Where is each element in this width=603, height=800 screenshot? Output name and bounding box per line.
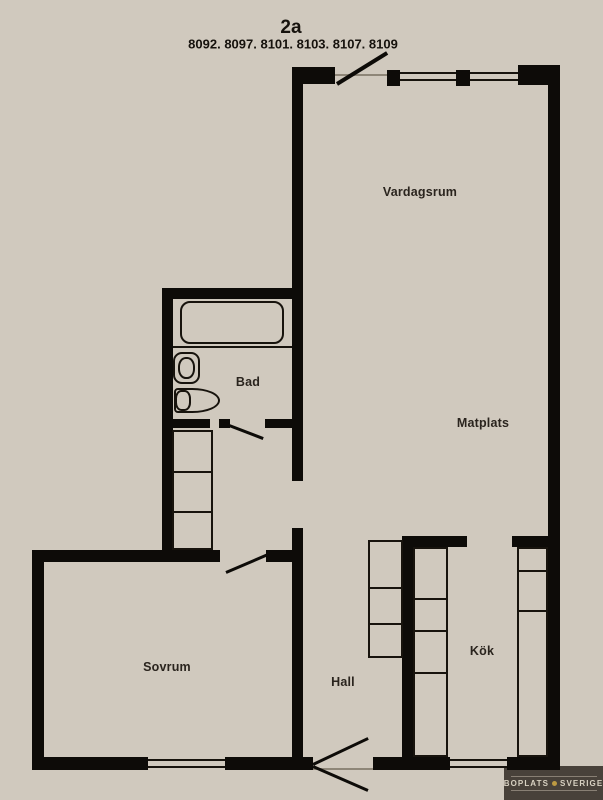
wall-segment xyxy=(373,757,450,770)
counter-divider xyxy=(415,630,446,632)
wall-segment xyxy=(266,550,303,562)
wall-segment xyxy=(512,536,548,547)
wall-segment xyxy=(32,550,220,562)
unit-numbers: 8092. 8097. 8101. 8103. 8107. 8109 xyxy=(188,37,398,52)
watermark-text-left: BOPLATS xyxy=(504,779,549,788)
sink-basin xyxy=(175,390,191,411)
closet-divider xyxy=(370,587,401,589)
wall-segment xyxy=(162,288,303,299)
room-label-hall: Hall xyxy=(331,675,355,689)
window-mullion xyxy=(456,70,470,86)
hall-wardrobe xyxy=(172,430,213,550)
room-label-sovrum: Sovrum xyxy=(143,660,191,674)
watermark-rule-top xyxy=(511,776,597,777)
wall-segment xyxy=(225,757,313,770)
window xyxy=(387,72,520,81)
room-label-bad: Bad xyxy=(236,375,260,389)
wall-segment xyxy=(32,757,148,770)
window xyxy=(450,759,507,768)
door-swing xyxy=(225,553,268,574)
wall-segment xyxy=(402,536,413,757)
wardrobe-divider xyxy=(174,511,211,513)
entrance-door-swing xyxy=(312,737,368,766)
watermark-badge: BOPLATS SVERIGE xyxy=(504,766,603,800)
door-threshold xyxy=(335,74,388,76)
watermark-text: BOPLATS SVERIGE xyxy=(504,779,603,788)
floorplan: 2a 8092. 8097. 8101. 8103. 8107. 8109 BO… xyxy=(0,0,603,800)
kitchen-counter-right xyxy=(517,547,548,757)
room-label-kok: Kök xyxy=(470,644,494,658)
room-label-matplats: Matplats xyxy=(457,416,509,430)
door-swing xyxy=(336,51,388,85)
bathtub xyxy=(180,301,284,344)
wall-segment xyxy=(292,528,303,757)
wardrobe-divider xyxy=(174,471,211,473)
wall-segment xyxy=(265,419,303,428)
toilet-seat xyxy=(178,357,195,379)
room-label-vardagsrum: Vardagsrum xyxy=(383,185,457,199)
bathtub-platform-edge xyxy=(173,346,292,348)
wall-segment xyxy=(548,65,560,770)
wall-segment xyxy=(507,757,560,770)
counter-divider xyxy=(519,570,546,572)
wall-segment xyxy=(172,419,210,428)
closet-divider xyxy=(370,623,401,625)
window-mullion xyxy=(387,70,400,86)
window xyxy=(148,759,225,768)
counter-divider xyxy=(519,610,546,612)
watermark-text-right: SVERIGE xyxy=(560,779,603,788)
door-swing xyxy=(223,422,263,440)
watermark-rule-bottom xyxy=(511,790,597,791)
wall-segment xyxy=(32,550,44,770)
counter-divider xyxy=(415,598,446,600)
hall-closet xyxy=(368,540,403,658)
kitchen-counter-left xyxy=(413,547,448,757)
watermark-logo-icon xyxy=(552,781,557,786)
wall-segment xyxy=(402,536,467,547)
counter-divider xyxy=(415,672,446,674)
